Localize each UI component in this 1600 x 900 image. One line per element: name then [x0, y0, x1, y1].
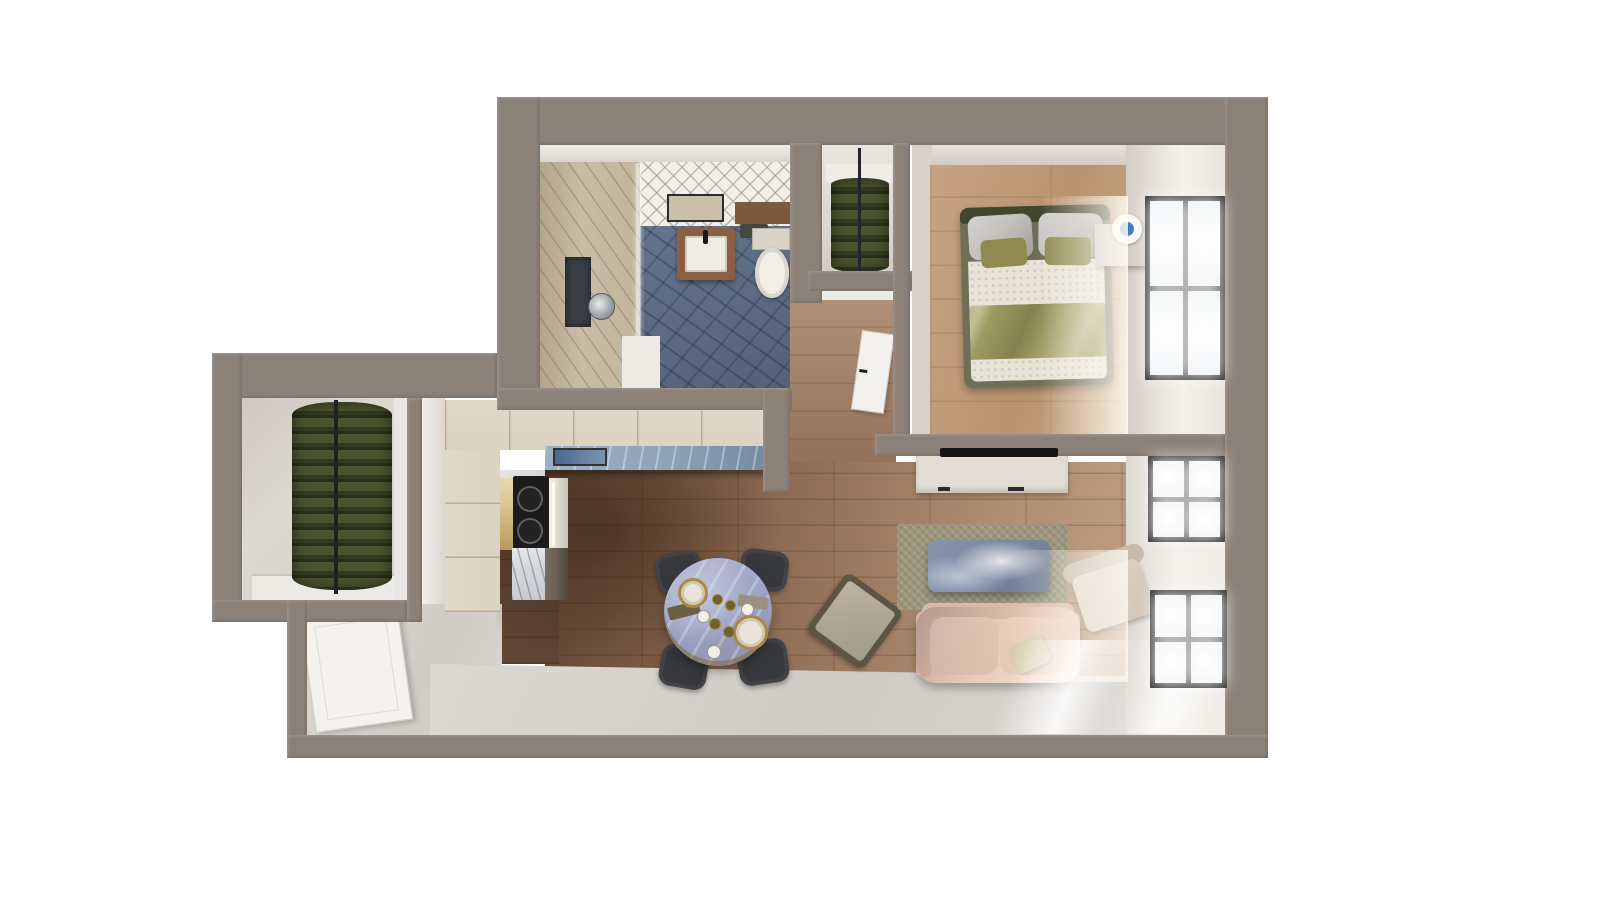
walkin-hanging-clothes: [292, 402, 392, 590]
pillow-accent-left: [980, 237, 1028, 269]
wall-bedroom-left: [893, 143, 910, 443]
toilet-tank: [752, 228, 790, 250]
wall-closet-right: [407, 398, 422, 622]
bedroom-window: [1145, 196, 1225, 380]
plate-lower: [733, 615, 768, 650]
vanity-sink: [677, 228, 735, 280]
console-handle-left: [938, 487, 950, 491]
wall-right: [1225, 97, 1268, 758]
sunlight-bedroom: [1040, 196, 1128, 434]
burner-bottom: [517, 518, 543, 544]
cup-3: [707, 645, 721, 659]
bathroom-wall-face-top: [540, 145, 792, 163]
plate-upper: [678, 578, 708, 608]
wall-leftwing-top: [212, 353, 497, 398]
toilet-bowl: [755, 248, 789, 298]
bowl-4: [723, 626, 735, 638]
burner-top: [517, 486, 543, 512]
bathroom-half-wall: [622, 336, 660, 392]
wall-bottom: [287, 735, 1268, 758]
cup-1: [697, 610, 710, 623]
floorplan-render: [0, 0, 1600, 900]
tv: [940, 448, 1058, 457]
counter-end-side: [545, 548, 568, 600]
entry-door-panel-line: [314, 617, 398, 720]
oven-handle: [552, 482, 555, 546]
bedroom-wall-face-left: [912, 143, 932, 436]
wardrobe-closet-rod: [858, 148, 861, 272]
shower-head: [588, 293, 615, 320]
wall-top: [497, 97, 1268, 145]
wall-bathroom-bottom: [497, 388, 792, 410]
bowl-1: [712, 594, 723, 605]
living-window-lower: [1150, 590, 1227, 688]
kitchen-wall-face-left: [422, 396, 445, 616]
shower-glass-divider: [636, 163, 641, 355]
shower-niche: [565, 257, 591, 327]
living-window-upper: [1148, 456, 1225, 542]
kitchen-side-cabinets: [445, 450, 500, 612]
wall-bathroom-left: [497, 97, 540, 398]
counter-shadow: [545, 470, 763, 480]
wall-leftwing-left: [212, 353, 242, 622]
stove: [500, 476, 568, 552]
mirror-cabinet: [667, 194, 724, 222]
cup-2: [741, 603, 754, 616]
stove-gold-trim: [500, 478, 513, 550]
console-handle-right: [1008, 487, 1024, 491]
walkin-closet-rod: [334, 400, 338, 594]
bowl-2: [725, 600, 736, 611]
wall-kitchen-hall-stub: [763, 388, 790, 492]
wall-leftwing-bottom: [212, 600, 407, 622]
marble-counter-end: [512, 548, 545, 600]
bathroom-wall-shelf: [735, 202, 792, 224]
backsplash-art: [553, 448, 607, 466]
bedroom-door-handle: [859, 369, 867, 373]
tv-console: [916, 455, 1068, 493]
walkin-closet-face-right: [394, 398, 407, 600]
entry-door: [300, 604, 413, 733]
sink-faucet: [703, 230, 708, 244]
bowl-3: [709, 618, 721, 630]
